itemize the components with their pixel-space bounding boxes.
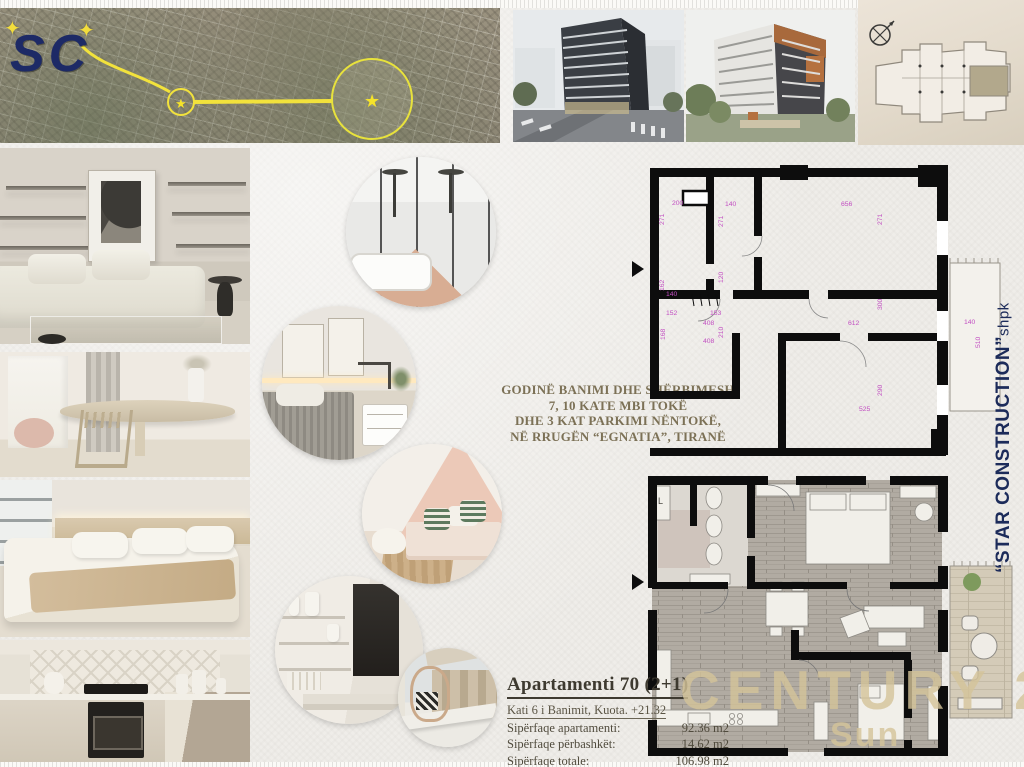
wall-art bbox=[88, 170, 156, 262]
svg-text:210: 210 bbox=[718, 326, 725, 338]
svg-text:140: 140 bbox=[725, 201, 737, 208]
photo-balcony-circle bbox=[398, 648, 497, 747]
svg-text:290: 290 bbox=[877, 384, 884, 396]
area-row: Sipërfaqe apartamenti: 92.36 m2 bbox=[507, 721, 745, 736]
photo-kitchen bbox=[0, 640, 250, 762]
map-start-star-icon: ★ bbox=[175, 96, 187, 111]
photo-study-area bbox=[0, 352, 250, 477]
floor-plan-dimensioned: 200 140 656 271 271 271 162 120 140 152 … bbox=[628, 163, 1008, 458]
building-rendering-street bbox=[513, 10, 684, 142]
map-site-star-icon: ★ bbox=[364, 91, 380, 111]
balcony-plant bbox=[963, 573, 981, 591]
svg-text:153: 153 bbox=[710, 310, 722, 317]
presentation-board: ★ ★ SC ✦ ✦ bbox=[0, 0, 1024, 767]
svg-text:300: 300 bbox=[877, 298, 884, 310]
svg-text:168: 168 bbox=[660, 328, 667, 340]
logo-star-icon: ✦ bbox=[78, 18, 95, 43]
chair bbox=[75, 410, 133, 468]
svg-text:271: 271 bbox=[877, 213, 884, 225]
svg-text:152: 152 bbox=[666, 310, 678, 317]
svg-text:408: 408 bbox=[703, 320, 715, 327]
area-row: Sipërfaqe përbashkët: 14.62 m2 bbox=[507, 737, 745, 752]
photo-kids-room-circle bbox=[362, 444, 502, 584]
svg-text:408: 408 bbox=[703, 338, 715, 345]
developer-name-vertical: “STAR CONSTRUCTION” shpk bbox=[984, 268, 1024, 608]
photo-bedroom-circle bbox=[262, 306, 416, 460]
svg-text:200: 200 bbox=[672, 200, 684, 207]
plan-pointer-arrow bbox=[632, 574, 644, 590]
sofa bbox=[864, 606, 924, 628]
plan-pointer-arrow bbox=[632, 261, 644, 277]
svg-text:525: 525 bbox=[859, 406, 871, 413]
photo-master-bedroom bbox=[0, 480, 250, 637]
area-row: Sipërfaqe totale: 106.98 m2 bbox=[507, 754, 745, 767]
dining-table bbox=[766, 592, 808, 626]
building-rendering-park bbox=[686, 10, 855, 142]
tv-panel bbox=[353, 584, 399, 676]
compass-icon bbox=[870, 21, 894, 45]
oven bbox=[88, 702, 144, 758]
satellite-map: ★ ★ SC ✦ ✦ bbox=[0, 8, 500, 143]
svg-text:120: 120 bbox=[718, 271, 725, 283]
svg-text:162: 162 bbox=[659, 279, 666, 291]
site-key-plan bbox=[858, 0, 1024, 145]
apartment-info: Apartamenti 70 (2+1) Kati 6 i Banimit, K… bbox=[507, 674, 745, 767]
kids-bed bbox=[406, 522, 502, 556]
logo-star-icon: ✦ bbox=[4, 16, 21, 41]
svg-text:140: 140 bbox=[964, 319, 976, 326]
svg-text:271: 271 bbox=[659, 213, 666, 225]
photo-living-room bbox=[0, 148, 250, 344]
nightstand bbox=[362, 404, 408, 446]
svg-text:656: 656 bbox=[841, 201, 853, 208]
apartment-subtitle: Kati 6 i Banimit, Kuota. +21.32 bbox=[507, 703, 666, 719]
bathtub bbox=[350, 253, 432, 291]
laundry-label: L bbox=[658, 496, 663, 506]
svg-text:140: 140 bbox=[666, 291, 678, 298]
photo-bathroom-circle bbox=[346, 157, 496, 307]
apartment-title: Apartamenti 70 (2+1) bbox=[507, 674, 688, 699]
svg-text:271: 271 bbox=[718, 215, 725, 227]
svg-text:612: 612 bbox=[848, 320, 860, 327]
highlighted-unit bbox=[970, 66, 1008, 96]
svg-text:510: 510 bbox=[975, 336, 982, 348]
side-table bbox=[208, 276, 242, 284]
